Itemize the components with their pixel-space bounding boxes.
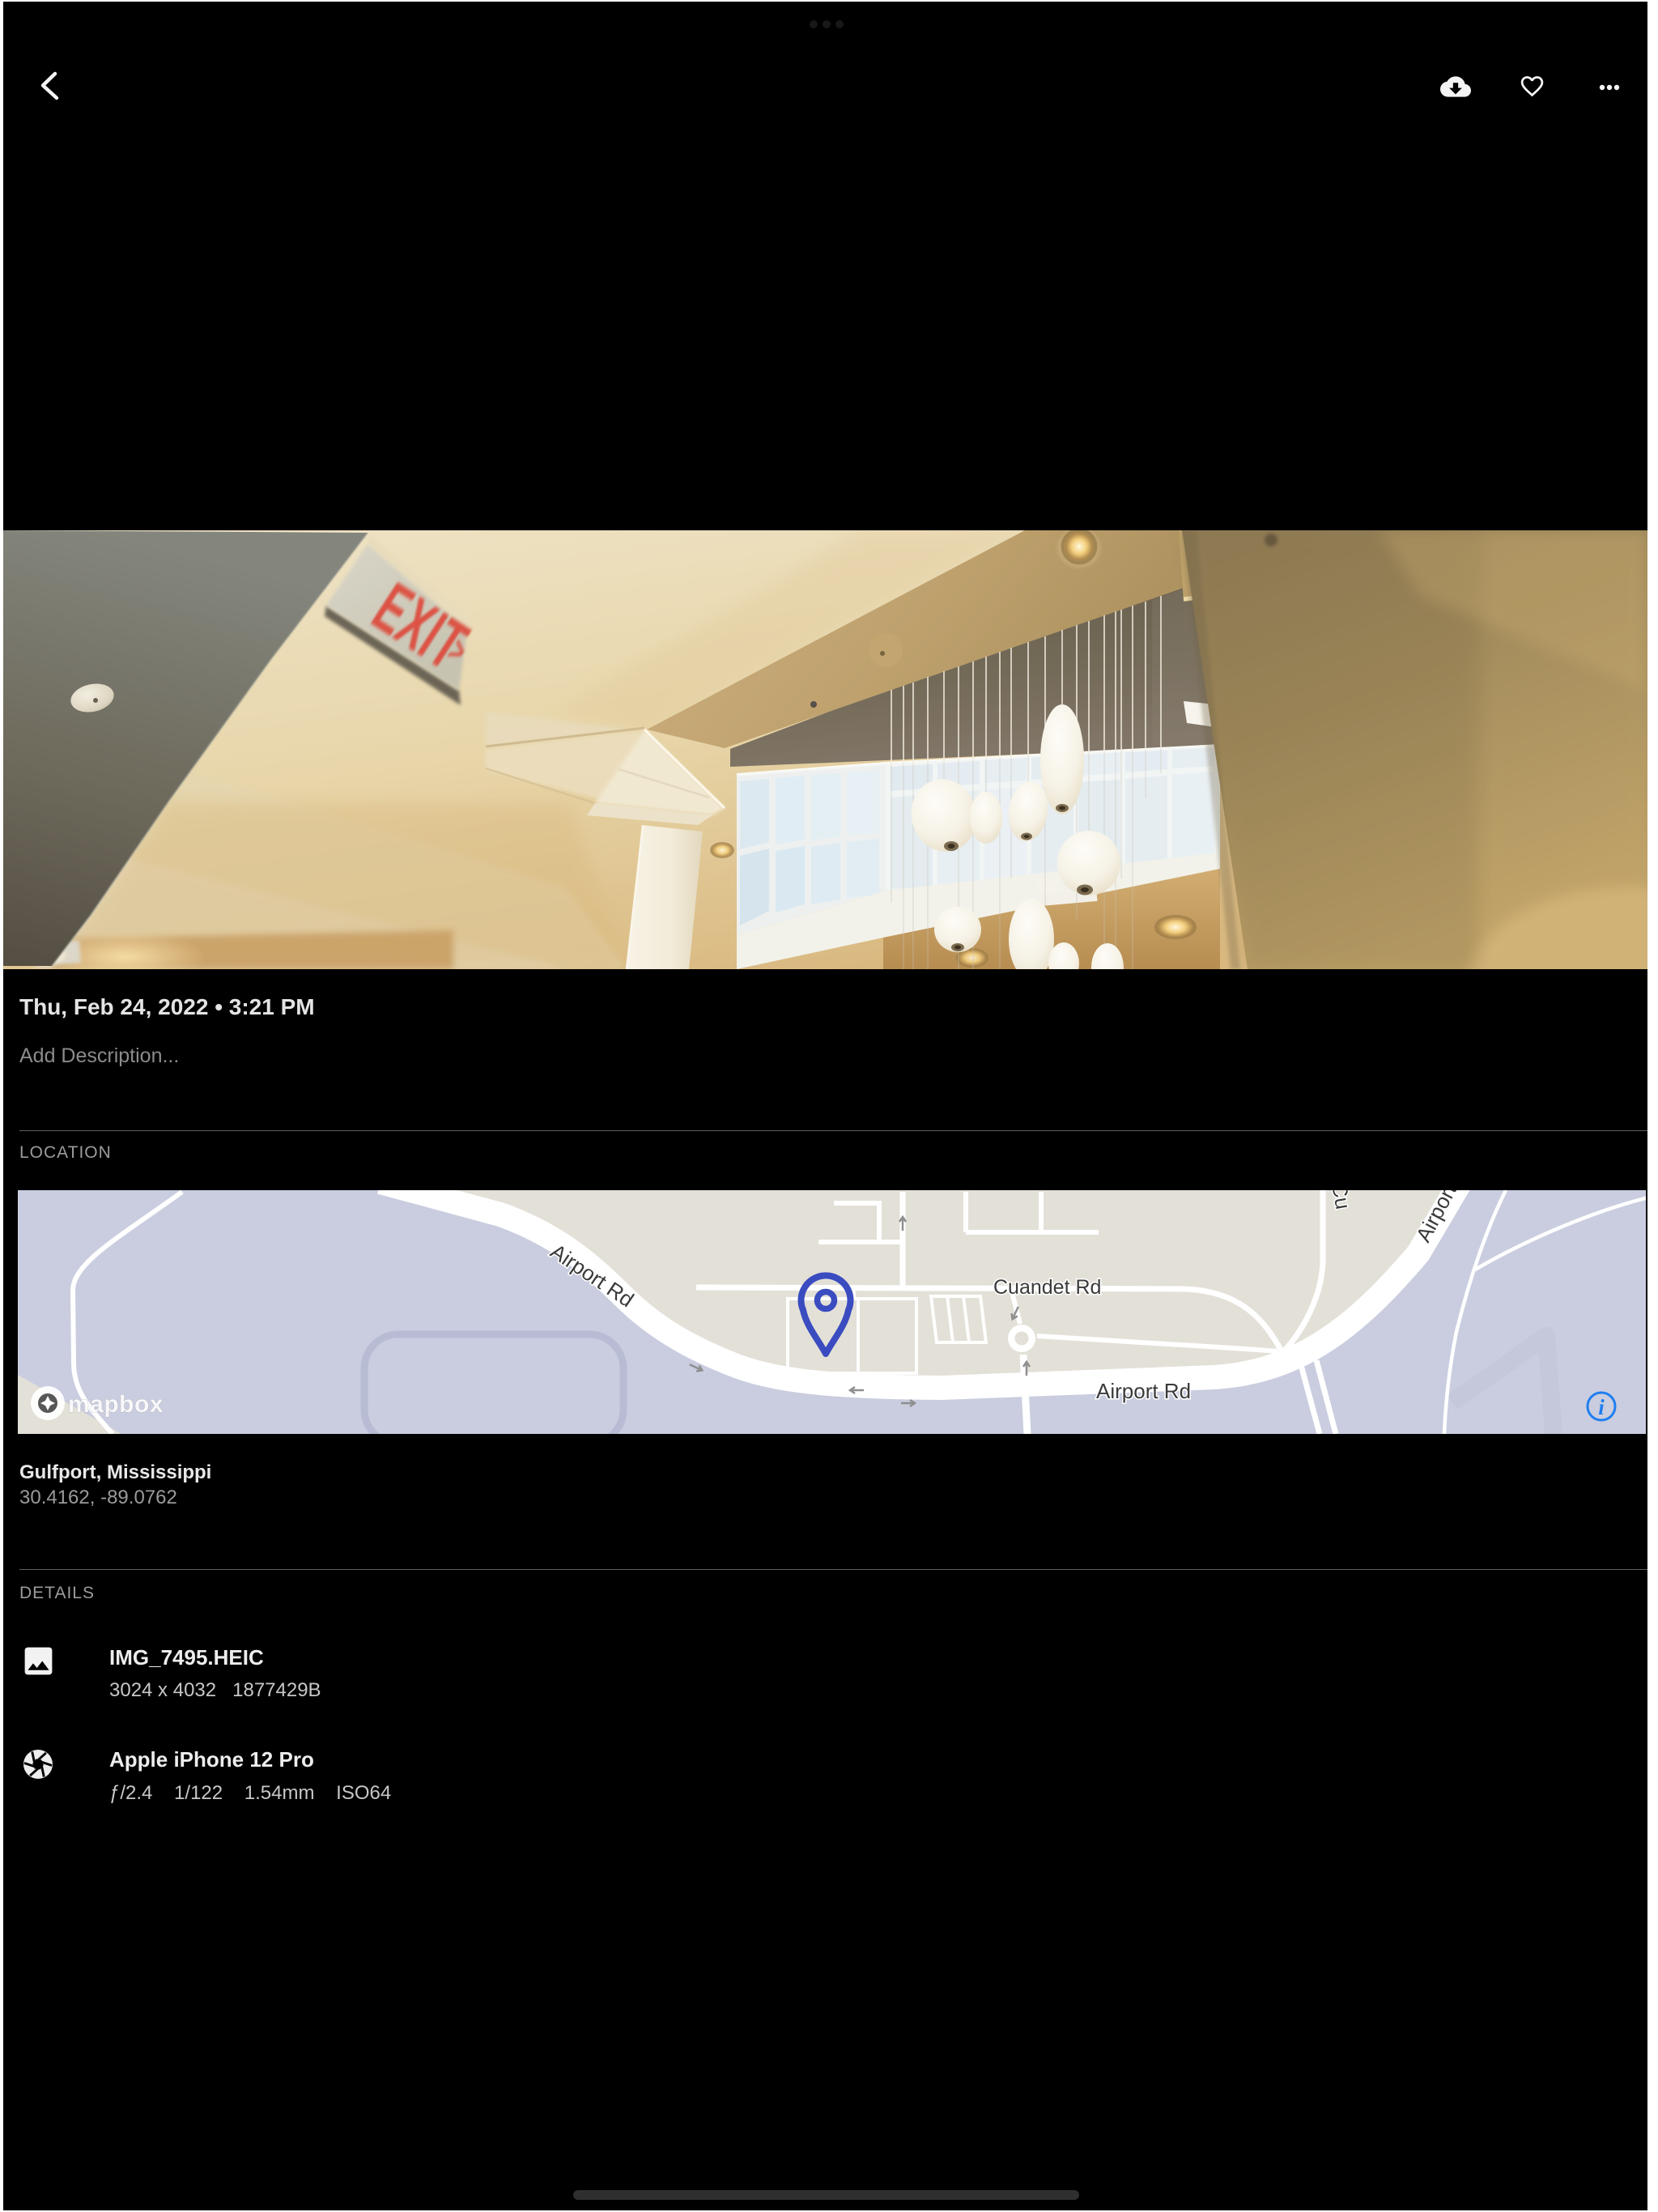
- svg-text:mapbox: mapbox: [68, 1391, 164, 1418]
- svg-text:i: i: [1598, 1395, 1605, 1419]
- svg-text:Cuandet Rd: Cuandet Rd: [993, 1276, 1101, 1299]
- svg-text:Airport Rd: Airport Rd: [1096, 1379, 1191, 1403]
